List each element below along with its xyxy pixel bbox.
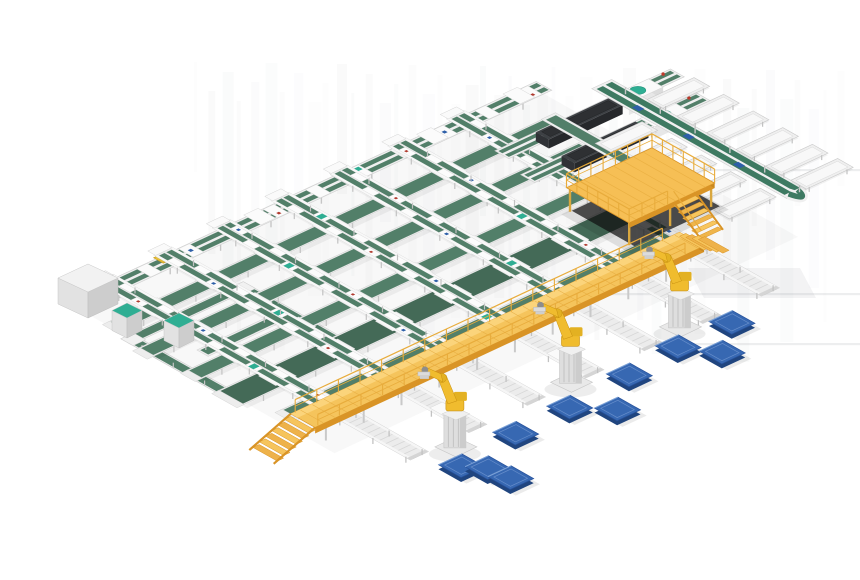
robot-gripper-pad [420, 376, 429, 379]
indicator-red [661, 72, 664, 75]
robot-gripper [418, 372, 430, 376]
robot-gripper [534, 307, 546, 311]
streak [809, 109, 819, 288]
robot-pedestal-shade [460, 414, 466, 448]
robot-pedestal-shade [685, 294, 691, 328]
streak [823, 90, 826, 322]
robot-gripper-pad [645, 256, 654, 259]
robot-gripper [643, 252, 655, 256]
robot-gripper-pad [536, 311, 545, 314]
streak [194, 62, 197, 172]
factory-3d-render [0, 0, 860, 580]
robot-pedestal-shade [576, 349, 582, 383]
streak [208, 91, 215, 254]
factory-render-stage [0, 0, 860, 580]
